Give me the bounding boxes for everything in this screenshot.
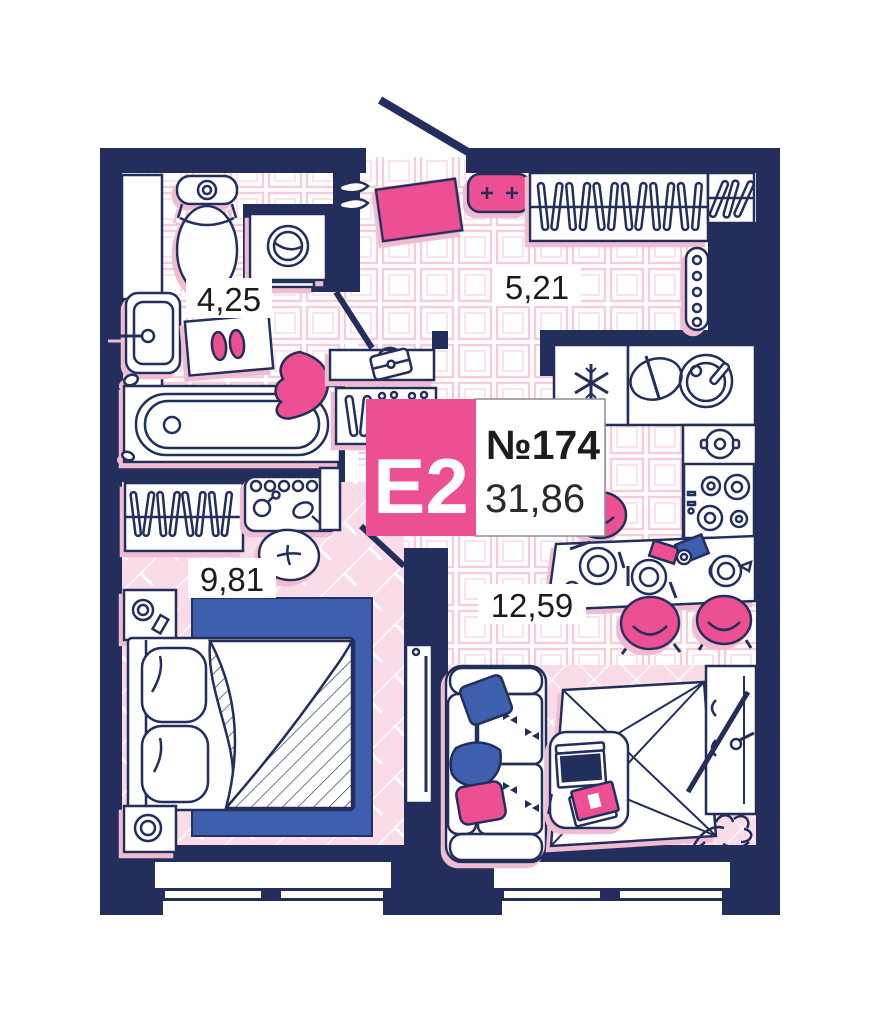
wall-top-left [100, 148, 366, 173]
nightstand-top [124, 590, 176, 640]
kitchen-counter-side [683, 425, 756, 540]
unit-number-label: №174 [486, 422, 600, 468]
tv-unit [406, 645, 432, 803]
entry-door-swing [380, 100, 468, 152]
wall-hall-kitchen [540, 330, 756, 346]
nightstand-bottom [124, 806, 176, 852]
bath-mat [185, 314, 273, 375]
sofa-pillow-blue-2 [451, 742, 501, 785]
hall-wardrobe [530, 173, 708, 241]
pillow-2 [142, 726, 208, 802]
bedroom-wardrobe [125, 483, 243, 551]
kitchen-counter-top [625, 345, 755, 425]
floor-plan-canvas: 4,25 5,21 9,81 12,59 Е2 №174 31,86 [0, 0, 879, 1016]
hallway-area-label: 5,21 [505, 269, 569, 306]
media-console [706, 666, 756, 814]
sofa-pillow-pink [455, 780, 507, 825]
bathroom-area-label: 4,25 [197, 281, 261, 318]
wall-top-right [466, 148, 780, 173]
entry-bench [468, 174, 530, 212]
bed [128, 638, 354, 810]
wall-right-block [708, 222, 756, 345]
coffee-table [548, 732, 628, 828]
floor-plan: 4,25 5,21 9,81 12,59 Е2 №174 31,86 [0, 0, 879, 1016]
storage-shelf [330, 344, 434, 381]
wall-kitchen-stub [540, 330, 554, 376]
coat-hooks [686, 248, 708, 330]
entry-mat [376, 179, 462, 242]
corner-cabinet [320, 468, 340, 530]
bedroom-area-label: 9,81 [200, 561, 264, 598]
bedroom [124, 468, 372, 852]
unit-type-label: Е2 [373, 442, 468, 530]
wall-left [100, 148, 122, 915]
washing-machine [250, 214, 326, 287]
wall-right [756, 148, 780, 915]
pillow-1 [142, 648, 206, 722]
unit-badge: Е2 №174 31,86 [366, 399, 605, 536]
living-area-label: 12,59 [491, 587, 574, 624]
sofa [446, 666, 546, 862]
wall-storage-stub [432, 331, 448, 349]
unit-area-label: 31,86 [485, 477, 585, 521]
cooktop [684, 464, 754, 538]
toilet [177, 176, 237, 294]
hall-wardrobe-side [708, 173, 754, 223]
